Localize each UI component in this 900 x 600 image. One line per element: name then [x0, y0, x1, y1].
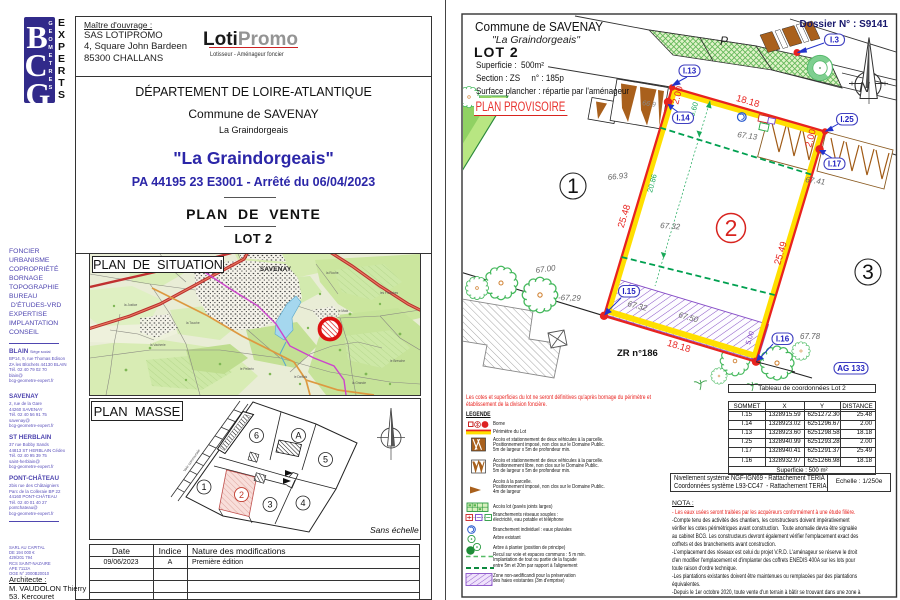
svg-text:E: E	[49, 77, 53, 83]
svg-text:4: 4	[300, 498, 305, 508]
svg-text:ZR n°186: ZR n°186	[617, 348, 658, 359]
svg-text:M: M	[48, 45, 53, 51]
svg-text:2: 2	[725, 215, 738, 241]
svg-text:67.32: 67.32	[660, 221, 681, 231]
svg-text:1: 1	[201, 482, 206, 492]
svg-text:3: 3	[862, 261, 874, 284]
svg-text:3: 3	[267, 500, 272, 510]
svg-text:1: 1	[567, 175, 579, 198]
svg-text:SAVENAY: SAVENAY	[260, 267, 292, 273]
svg-text:le Deffais: le Deffais	[294, 375, 308, 379]
svg-text:la Grande: la Grande	[352, 381, 366, 385]
svg-text:G: G	[48, 21, 52, 27]
svg-text:I.17: I.17	[828, 160, 842, 169]
svg-text:X: X	[58, 29, 65, 41]
svg-text:I.16: I.16	[776, 335, 790, 344]
svg-text:I.3: I.3	[830, 36, 839, 45]
svg-text:S: S	[58, 89, 65, 101]
svg-text:R: R	[49, 69, 53, 75]
svg-text:P: P	[720, 34, 728, 48]
svg-text:S: S	[49, 85, 53, 91]
svg-text:6: 6	[254, 431, 259, 441]
svg-text:le Matz: le Matz	[338, 309, 349, 313]
svg-text:I.13: I.13	[683, 67, 697, 76]
svg-text:67.78: 67.78	[800, 332, 821, 341]
svg-text:E: E	[49, 29, 53, 35]
svg-text:la Roche: la Roche	[326, 271, 339, 275]
svg-text:5: 5	[323, 455, 328, 465]
svg-text:la Justice: la Justice	[124, 303, 138, 307]
svg-text:E: E	[58, 53, 65, 65]
svg-text:R: R	[58, 65, 66, 77]
svg-text:E: E	[49, 53, 53, 59]
svg-text:N: N	[859, 79, 870, 96]
svg-text:O: O	[48, 37, 53, 43]
svg-text:la Vacherie: la Vacherie	[150, 343, 166, 347]
svg-text:le Pellerin: le Pellerin	[240, 367, 254, 371]
svg-text:le Bresche: le Bresche	[390, 359, 405, 363]
svg-text:-67,29: -67,29	[558, 293, 582, 303]
svg-text:2: 2	[239, 490, 244, 500]
svg-text:I.14: I.14	[676, 114, 690, 123]
svg-text:A: A	[295, 431, 301, 441]
svg-text:la Touche: la Touche	[186, 321, 200, 325]
svg-text:Voie communale: Voie communale	[183, 449, 202, 473]
svg-text:E: E	[58, 17, 65, 29]
svg-text:I.15: I.15	[622, 287, 636, 296]
svg-text:P: P	[58, 41, 65, 53]
svg-text:I.25: I.25	[840, 115, 854, 124]
svg-text:les Fresches: les Fresches	[380, 291, 398, 295]
svg-text:T: T	[58, 77, 65, 89]
svg-text:G: G	[26, 76, 51, 110]
svg-text:AG 133: AG 133	[837, 364, 865, 373]
